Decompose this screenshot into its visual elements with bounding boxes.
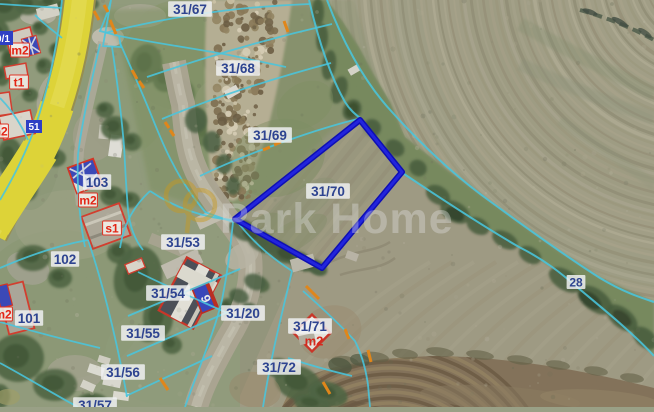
svg-text:m2: m2	[305, 334, 324, 349]
svg-text:31/53: 31/53	[166, 235, 200, 250]
svg-text:31/71: 31/71	[293, 319, 327, 334]
svg-text:31/54: 31/54	[151, 286, 185, 301]
svg-text:t1: t1	[14, 75, 25, 89]
svg-text:31/57: 31/57	[78, 398, 112, 407]
svg-text:m2: m2	[0, 124, 8, 138]
svg-text:31/70: 31/70	[311, 184, 345, 199]
svg-text:31/72: 31/72	[262, 360, 296, 375]
svg-text:s1: s1	[105, 221, 119, 235]
svg-text:m2: m2	[79, 193, 97, 207]
svg-text:31/67: 31/67	[173, 2, 207, 17]
svg-text:102: 102	[54, 252, 77, 267]
svg-text:m2: m2	[0, 307, 12, 321]
svg-text:103: 103	[86, 175, 109, 190]
svg-text:31/68: 31/68	[221, 61, 255, 76]
svg-text:31/55: 31/55	[126, 326, 160, 341]
svg-text:31/56: 31/56	[106, 365, 140, 380]
svg-text:31/69: 31/69	[253, 128, 287, 143]
svg-text:31/20: 31/20	[226, 306, 260, 321]
svg-text:28: 28	[569, 275, 583, 289]
svg-text:0/1: 0/1	[0, 34, 10, 45]
svg-text:m2: m2	[11, 43, 29, 57]
svg-text:Park Home: Park Home	[220, 195, 454, 243]
svg-text:51: 51	[28, 122, 40, 133]
svg-text:101: 101	[18, 311, 41, 326]
